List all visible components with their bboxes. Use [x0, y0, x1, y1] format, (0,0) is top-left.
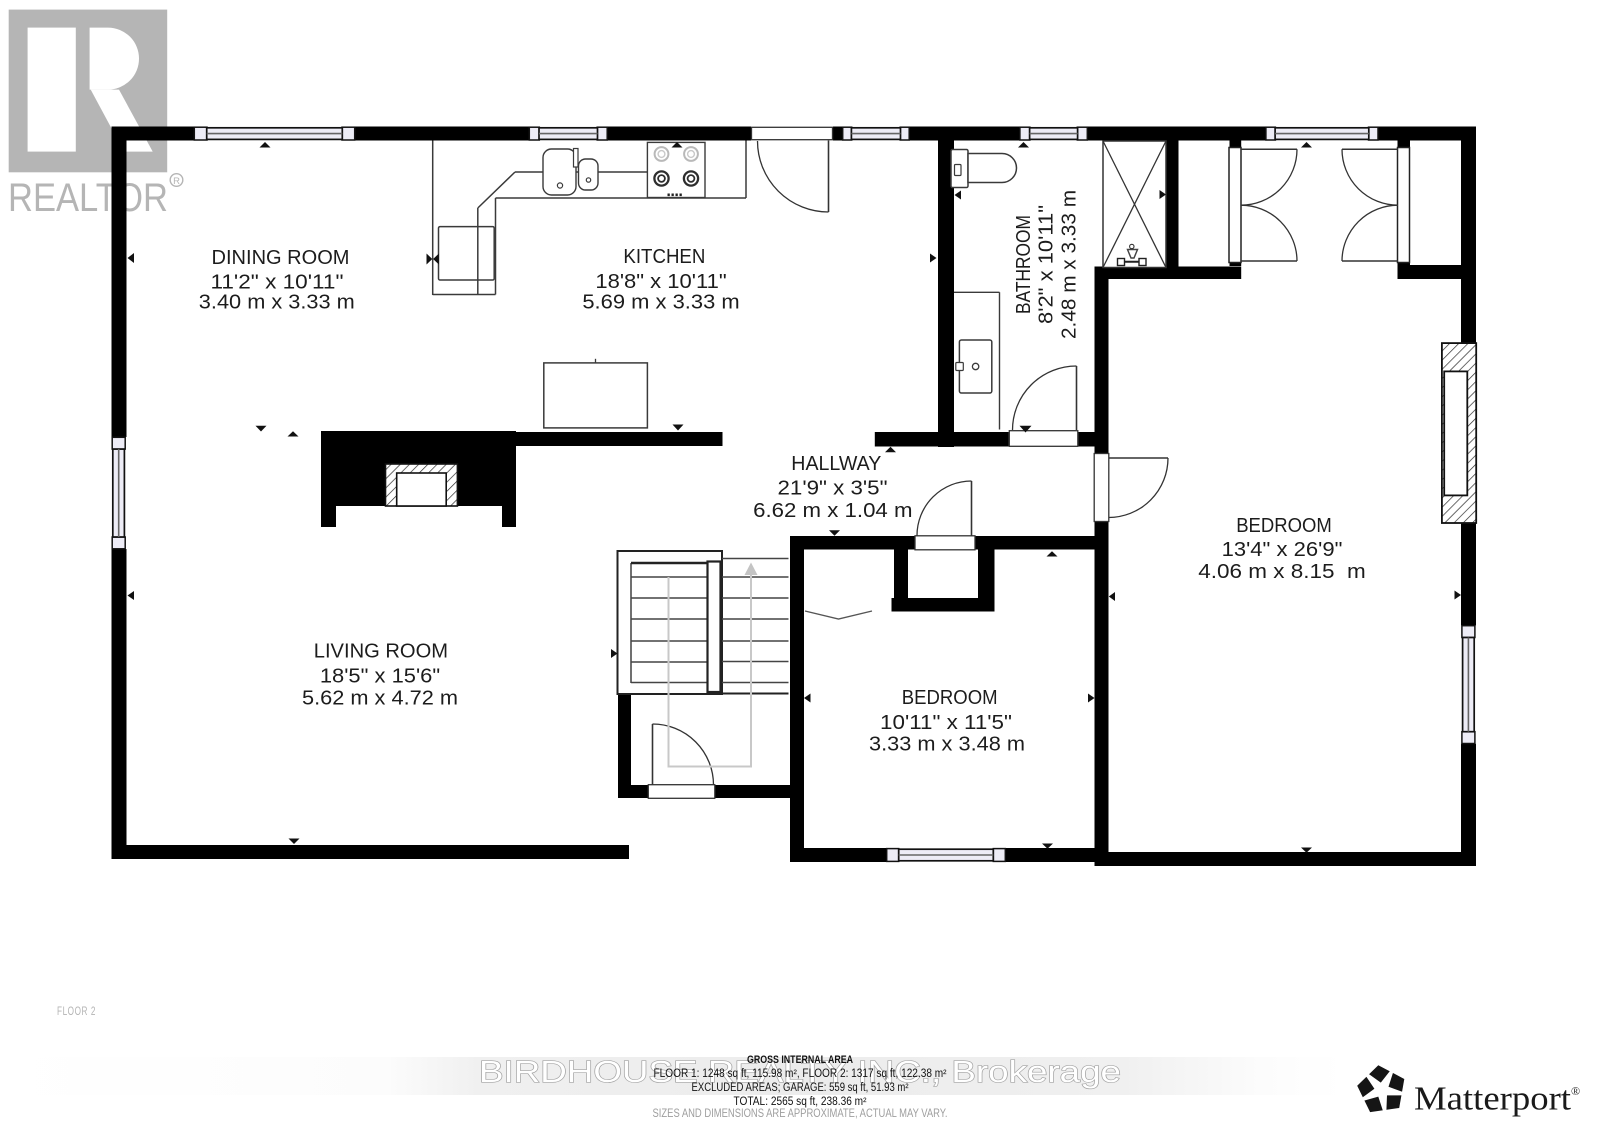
- svg-text:6.62 m x 1.04 m: 6.62 m x 1.04 m: [753, 499, 912, 522]
- svg-text:REALTOR: REALTOR: [8, 176, 168, 220]
- svg-text:GROSS INTERNAL AREA: GROSS INTERNAL AREA: [747, 1054, 853, 1066]
- svg-text:TOTAL: 2565 sq ft, 238.36 m²: TOTAL: 2565 sq ft, 238.36 m²: [734, 1096, 867, 1108]
- svg-text:4.06 m x 8.15 m: 4.06 m x 8.15 m: [1198, 560, 1366, 583]
- svg-text:SIZES AND DIMENSIONS ARE APPRO: SIZES AND DIMENSIONS ARE APPROXIMATE, AC…: [653, 1108, 948, 1120]
- svg-text:EXCLUDED AREAS; GARAGE: 559 sq: EXCLUDED AREAS; GARAGE: 559 sq ft, 51.93…: [692, 1082, 909, 1094]
- svg-text:Matterport: Matterport: [1414, 1081, 1572, 1118]
- svg-text:10'11" x 11'5": 10'11" x 11'5": [880, 711, 1012, 734]
- svg-text:FLOOR 2: FLOOR 2: [57, 1006, 96, 1018]
- svg-text:HALLWAY: HALLWAY: [791, 452, 881, 475]
- svg-text:DINING ROOM: DINING ROOM: [212, 246, 350, 269]
- svg-text:R: R: [173, 176, 180, 187]
- svg-text:5.62 m x 4.72 m: 5.62 m x 4.72 m: [302, 687, 458, 710]
- svg-text:KITCHEN: KITCHEN: [623, 245, 705, 268]
- svg-text:FLOOR 1: 1248 sq ft, 115.98 m²: FLOOR 1: 1248 sq ft, 115.98 m², FLOOR 2:…: [654, 1068, 947, 1080]
- svg-text:®: ®: [1571, 1084, 1580, 1098]
- svg-text:2.48 m x 3.33 m: 2.48 m x 3.33 m: [1058, 190, 1081, 339]
- svg-text:13'4" x 26'9": 13'4" x 26'9": [1222, 538, 1343, 561]
- svg-text:21'9" x 3'5": 21'9" x 3'5": [778, 477, 888, 500]
- svg-text:8'2" x 10'11": 8'2" x 10'11": [1035, 205, 1058, 324]
- svg-text:18'5" x 15'6": 18'5" x 15'6": [320, 665, 440, 688]
- svg-text:5.69 m x 3.33 m: 5.69 m x 3.33 m: [582, 291, 739, 314]
- svg-text:3.33 m x 3.48 m: 3.33 m x 3.48 m: [869, 733, 1025, 756]
- svg-text:BEDROOM: BEDROOM: [1236, 514, 1332, 537]
- svg-text:BATHROOM: BATHROOM: [1012, 215, 1035, 314]
- svg-text:LIVING ROOM: LIVING ROOM: [314, 640, 448, 663]
- svg-text:BEDROOM: BEDROOM: [902, 686, 998, 709]
- svg-text:3.40 m x 3.33 m: 3.40 m x 3.33 m: [199, 291, 355, 314]
